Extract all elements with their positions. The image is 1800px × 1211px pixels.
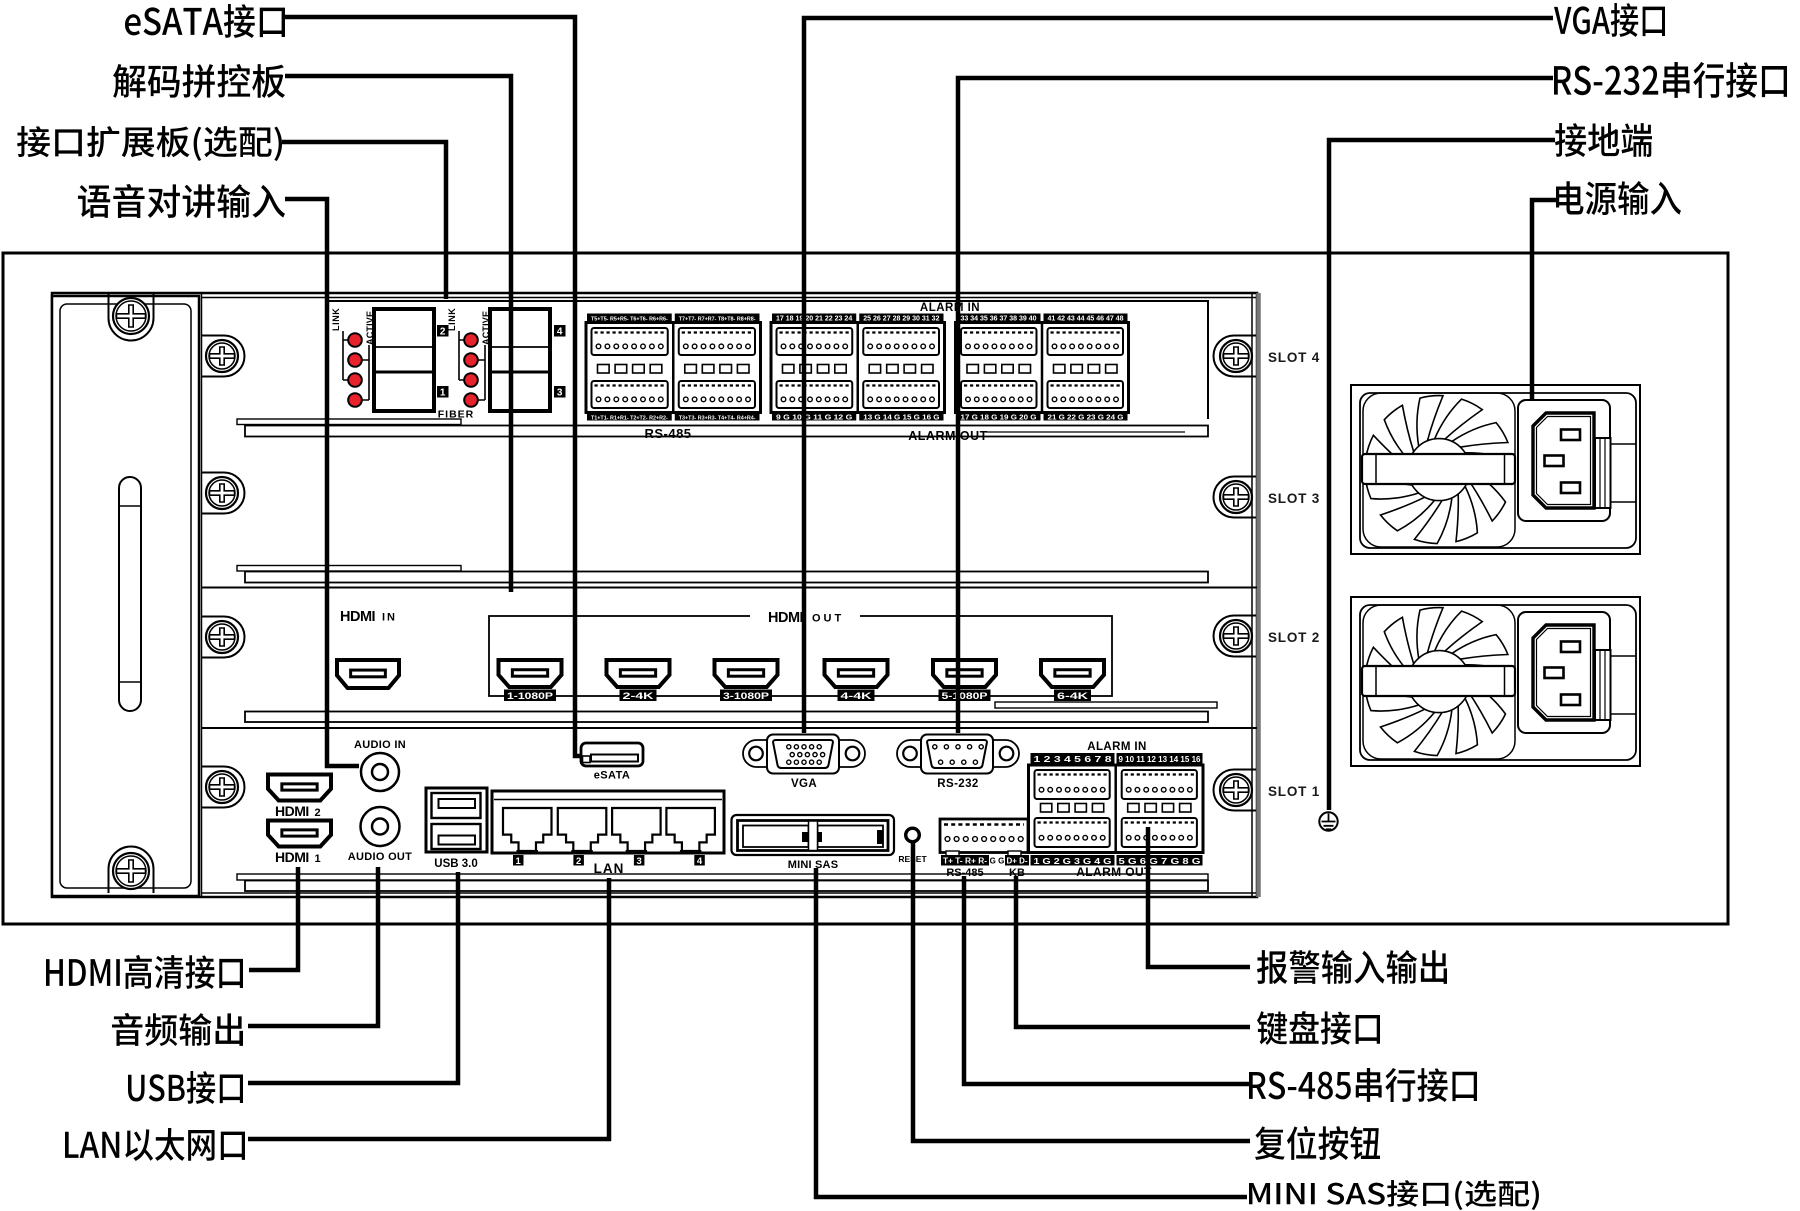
svg-text:2: 2: [576, 856, 581, 867]
svg-text:HDMI: HDMI: [768, 610, 804, 626]
svg-text:SLOT 3: SLOT 3: [1268, 491, 1320, 506]
svg-text:ALARM IN: ALARM IN: [920, 302, 980, 314]
svg-text:1-1080P: 1-1080P: [507, 691, 554, 702]
svg-text:4: 4: [697, 856, 703, 867]
svg-text:1: 1: [440, 388, 446, 399]
svg-text:AUDIO IN: AUDIO IN: [354, 739, 406, 751]
svg-text:2-4K: 2-4K: [623, 691, 654, 702]
svg-text:9 10 11 12 13 14 15 16: 9 10 11 12 13 14 15 16: [1119, 754, 1201, 764]
svg-text:1: 1: [516, 856, 522, 867]
svg-text:eSATA: eSATA: [594, 770, 630, 782]
svg-text:17 18 19 20 21 22 23 24: 17 18 19 20 21 22 23 24: [776, 313, 852, 322]
svg-text:25 26 27 28 29 30 31 32: 25 26 27 28 29 30 31 32: [863, 313, 939, 322]
svg-text:1: 1: [315, 853, 321, 865]
svg-text:G G: G G: [990, 857, 1005, 866]
svg-text:41 42 43 44 45 46 47 48: 41 42 43 44 45 46 47 48: [1048, 313, 1124, 322]
svg-text:T1+T1- R1+R1- T2+T2- R2+R2-: T1+T1- R1+R1- T2+T2- R2+R2-: [591, 415, 668, 421]
svg-text:3: 3: [557, 388, 563, 399]
svg-text:HDMI: HDMI: [275, 849, 309, 865]
svg-text:ALARM OUT: ALARM OUT: [1076, 865, 1152, 879]
svg-text:1 2 3 4 5 6 7 8: 1 2 3 4 5 6 7 8: [1034, 754, 1112, 764]
svg-text:AUDIO OUT: AUDIO OUT: [348, 851, 412, 863]
svg-text:ACTIVE: ACTIVE: [365, 311, 375, 345]
svg-text:33 34 35 36 37 38 39 40: 33 34 35 36 37 38 39 40: [961, 313, 1037, 322]
svg-text:SLOT 1: SLOT 1: [1268, 784, 1320, 799]
svg-text:IN: IN: [382, 612, 397, 624]
svg-text:ALARM OUT: ALARM OUT: [908, 429, 988, 443]
svg-text:ALARM IN: ALARM IN: [1087, 741, 1146, 753]
svg-text:6-4K: 6-4K: [1057, 691, 1088, 702]
svg-text:3-1080P: 3-1080P: [723, 691, 770, 702]
svg-text:MINI SAS: MINI SAS: [788, 859, 839, 871]
svg-text:4: 4: [557, 327, 563, 338]
svg-text:2: 2: [315, 807, 321, 819]
svg-text:LAN: LAN: [594, 861, 625, 876]
svg-text:ACTIVE: ACTIVE: [481, 311, 491, 345]
svg-text:SLOT 2: SLOT 2: [1268, 630, 1320, 645]
svg-text:HDMI: HDMI: [340, 609, 376, 625]
svg-text:LINK: LINK: [331, 308, 341, 331]
svg-text:9 G 10 G 11 G 12 G: 9 G 10 G 11 G 12 G: [776, 412, 853, 421]
svg-text:VGA: VGA: [791, 778, 817, 790]
svg-text:21 G 22 G 23 G 24 G: 21 G 22 G 23 G 24 G: [1048, 412, 1124, 421]
svg-text:RS-232: RS-232: [937, 778, 978, 790]
svg-text:T+ T- R+ R-: T+ T- R+ R-: [943, 857, 987, 866]
svg-text:2: 2: [440, 327, 446, 338]
svg-text:SLOT 4: SLOT 4: [1268, 350, 1320, 365]
svg-text:3: 3: [636, 856, 641, 867]
svg-text:USB 3.0: USB 3.0: [434, 858, 477, 870]
svg-text:5-1080P: 5-1080P: [942, 691, 989, 702]
svg-text:HDMI: HDMI: [275, 803, 309, 819]
svg-text:FIBER: FIBER: [438, 409, 475, 421]
svg-text:4-4K: 4-4K: [841, 691, 872, 702]
svg-text:13 G 14 G 15 G 16 G: 13 G 14 G 15 G 16 G: [863, 412, 940, 421]
svg-text:D+ D-: D+ D-: [1007, 857, 1028, 866]
svg-text:T3+T3- R3+R3- T4+T4- R4+R4-: T3+T3- R3+R3- T4+T4- R4+R4-: [679, 415, 756, 421]
svg-text:17 G 18 G 19 G 20 G: 17 G 18 G 19 G 20 G: [961, 412, 1037, 421]
svg-text:LINK: LINK: [447, 308, 457, 331]
svg-text:RS-485: RS-485: [644, 426, 691, 441]
svg-text:OUT: OUT: [812, 613, 844, 625]
